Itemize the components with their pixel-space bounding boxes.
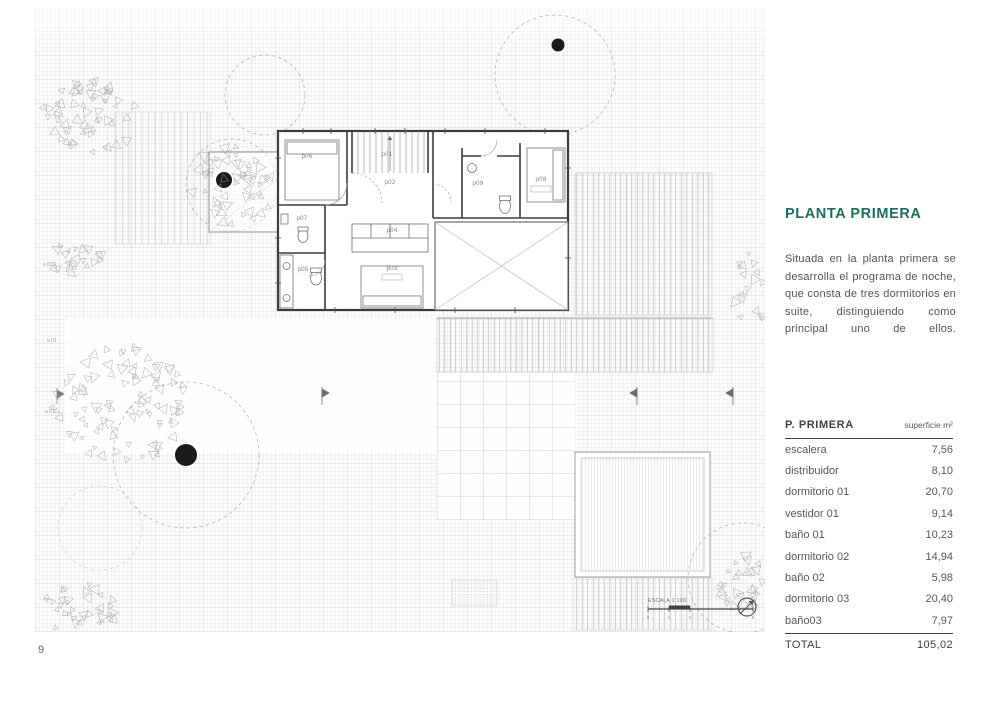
room-label-p02: p02 bbox=[385, 179, 396, 186]
scale-tick-5: 5 bbox=[752, 615, 755, 620]
scale-tick-2: 2 bbox=[689, 615, 692, 620]
areas-table: P. PRIMERA superficie m² escalera7,56dis… bbox=[785, 419, 953, 657]
room-label-p03: p03 bbox=[387, 265, 398, 272]
level-markers bbox=[322, 387, 733, 405]
table-row: dormitorio 0320,40 bbox=[785, 589, 953, 610]
row-value: 7,97 bbox=[932, 615, 953, 627]
page: { "page": { "number": "9" }, "sidebar": … bbox=[0, 0, 994, 702]
plan-svg: p01 p02 p03 p04 p05 p06 p07 p08 p09 a 02… bbox=[35, 8, 765, 632]
row-value: 7,56 bbox=[932, 444, 953, 456]
table-row: dormitorio 0214,94 bbox=[785, 546, 953, 567]
site-plan-drawing: p01 p02 p03 p04 p05 p06 p07 p08 p09 a 02… bbox=[35, 8, 765, 632]
row-label: vestidor 01 bbox=[785, 508, 839, 520]
row-label: baño 02 bbox=[785, 572, 825, 584]
row-value: 9,14 bbox=[932, 508, 953, 520]
row-label: dormitorio 02 bbox=[785, 551, 849, 563]
row-label: dormitorio 01 bbox=[785, 486, 849, 498]
table-row: escalera7,56 bbox=[785, 439, 953, 460]
intro-paragraph: Situada en la planta primera se desarrol… bbox=[785, 251, 956, 357]
room-label-p07: p07 bbox=[297, 215, 308, 222]
site-label-2: a 01 bbox=[47, 338, 57, 344]
house-plan bbox=[275, 128, 571, 313]
row-value: 14,94 bbox=[925, 551, 953, 563]
areas-table-total-row: TOTAL 105,02 bbox=[785, 633, 953, 657]
table-row: baño 0110,23 bbox=[785, 525, 953, 546]
row-label: dormitorio 03 bbox=[785, 593, 849, 605]
table-row: baño037,97 bbox=[785, 610, 953, 631]
total-label: TOTAL bbox=[785, 639, 821, 651]
table-row: baño 025,98 bbox=[785, 567, 953, 588]
row-value: 5,98 bbox=[932, 572, 953, 584]
row-value: 20,70 bbox=[925, 486, 953, 498]
scale-label: ESCALA 1:100 bbox=[648, 598, 686, 604]
room-label-p08: p08 bbox=[536, 176, 547, 183]
areas-table-rows: escalera7,56distribuidor8,10dormitorio 0… bbox=[785, 439, 953, 632]
double-height-void bbox=[435, 222, 568, 310]
areas-table-unit: superficie m² bbox=[904, 420, 953, 430]
room-label-p05: p05 bbox=[298, 266, 309, 273]
page-number: 9 bbox=[38, 644, 44, 656]
room-label-p04: p04 bbox=[387, 227, 398, 234]
site-label-1: a 022 bbox=[43, 262, 56, 268]
areas-table-title: P. PRIMERA bbox=[785, 419, 854, 431]
row-label: escalera bbox=[785, 444, 827, 456]
row-label: baño 01 bbox=[785, 529, 825, 541]
row-value: 20,40 bbox=[925, 593, 953, 605]
table-row: dormitorio 0120,70 bbox=[785, 482, 953, 503]
row-value: 10,23 bbox=[925, 529, 953, 541]
total-value: 105,02 bbox=[917, 639, 953, 651]
terrace-lower bbox=[575, 452, 710, 577]
room-label-p09: p09 bbox=[473, 180, 484, 187]
table-row: vestidor 019,14 bbox=[785, 503, 953, 524]
page-title: PLANTA PRIMERA bbox=[785, 206, 965, 222]
scale-tick-0: 0 bbox=[647, 615, 650, 620]
site-label-3: a 07 bbox=[45, 409, 55, 415]
row-label: baño03 bbox=[785, 615, 822, 627]
room-label-p06: p06 bbox=[302, 153, 313, 160]
areas-table-header: P. PRIMERA superficie m² bbox=[785, 419, 953, 439]
table-row: distribuidor8,10 bbox=[785, 460, 953, 481]
row-value: 8,10 bbox=[932, 465, 953, 477]
scale-tick-1: 1 bbox=[668, 615, 671, 620]
row-label: distribuidor bbox=[785, 465, 839, 477]
room-label-p01: p01 bbox=[382, 151, 393, 158]
